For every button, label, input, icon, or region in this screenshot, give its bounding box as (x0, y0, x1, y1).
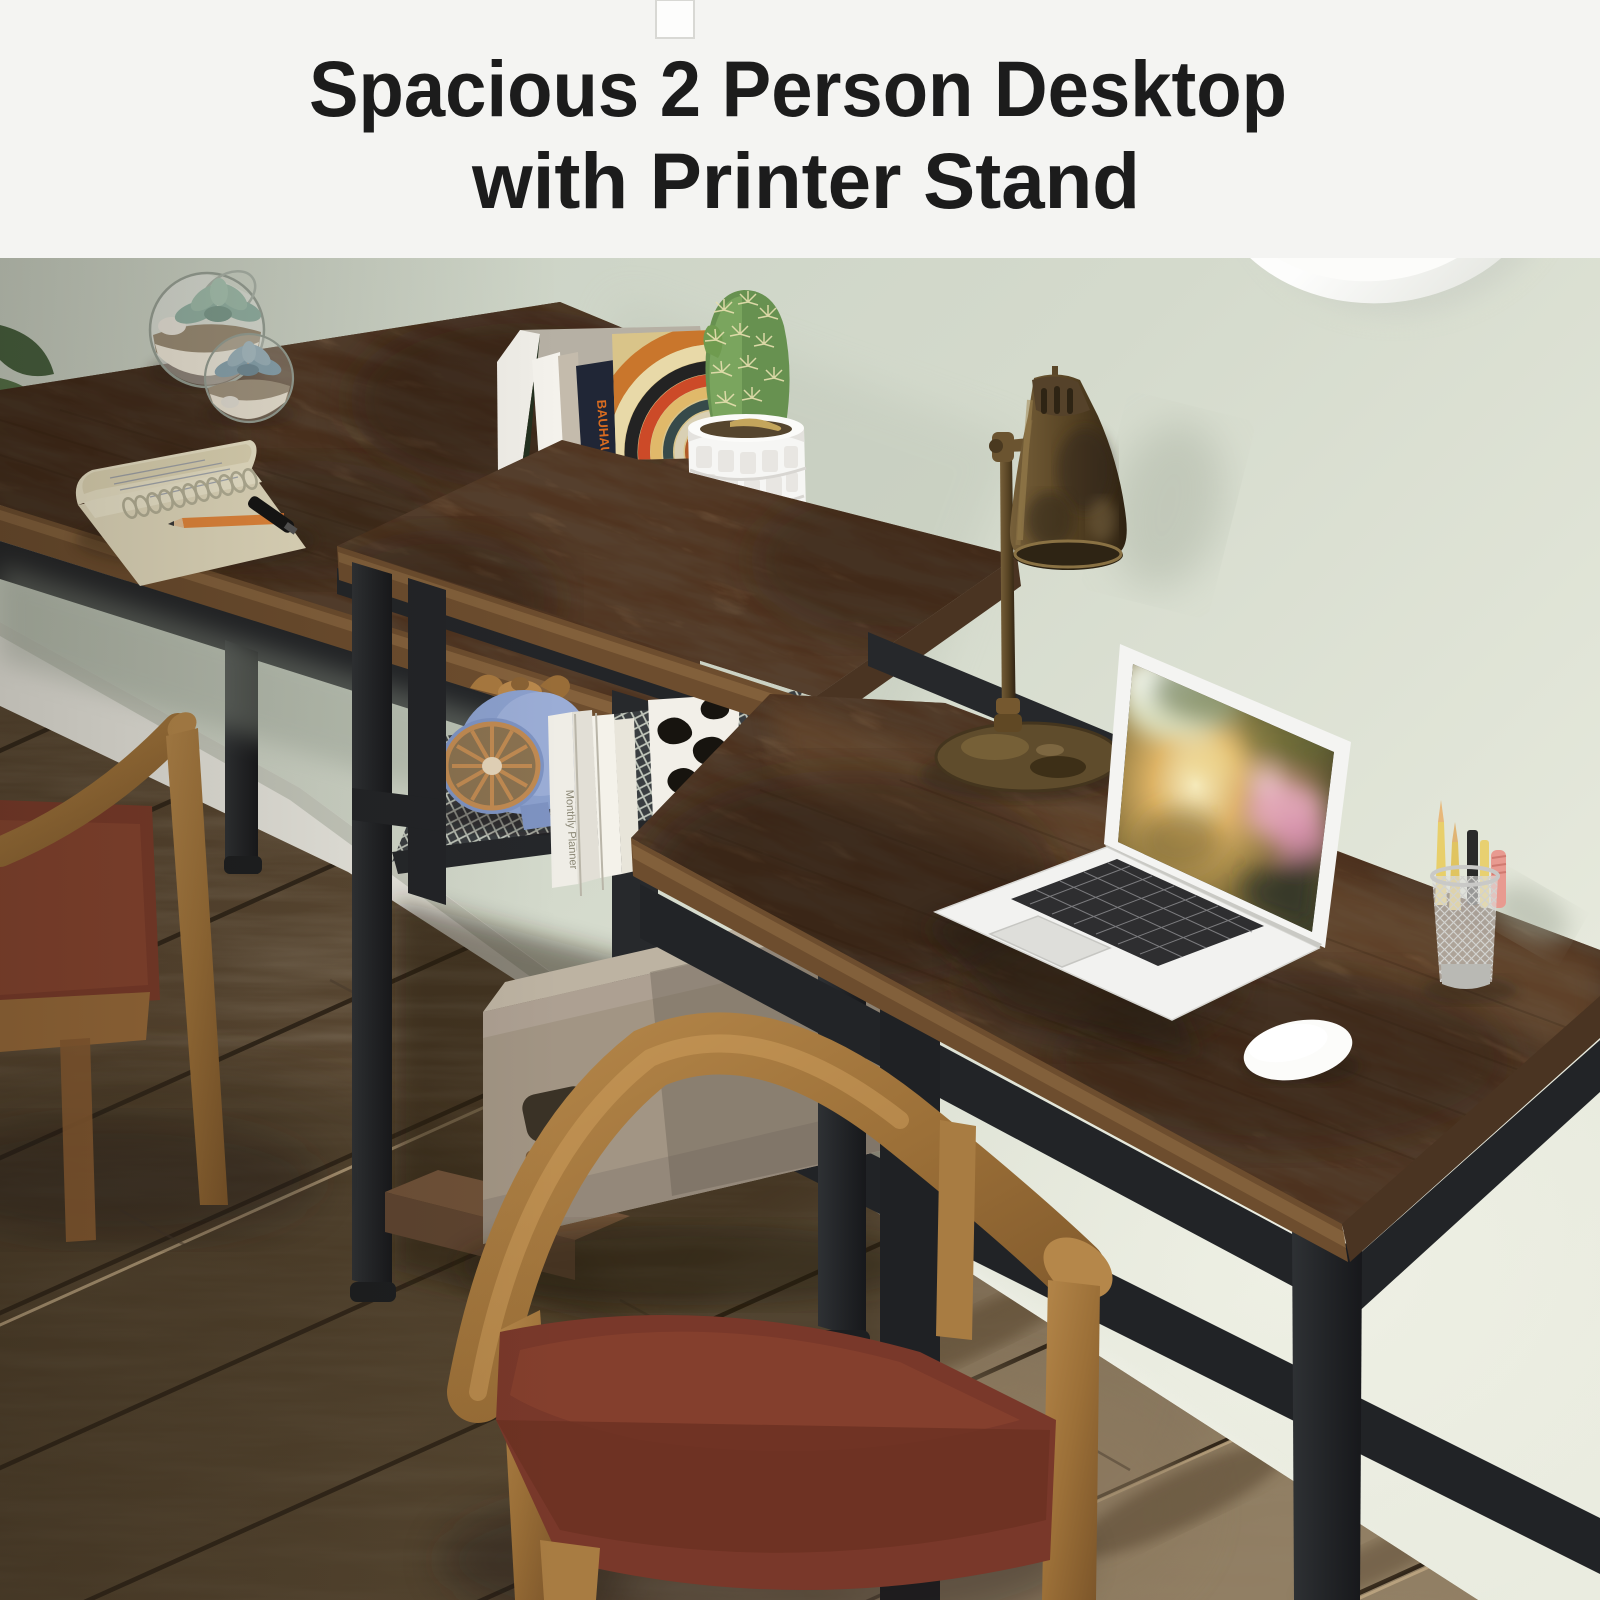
svg-text:with Printer Stand: with Printer Stand (471, 136, 1140, 225)
svg-text:Spacious 2 Person Desktop: Spacious 2 Person Desktop (309, 44, 1287, 133)
